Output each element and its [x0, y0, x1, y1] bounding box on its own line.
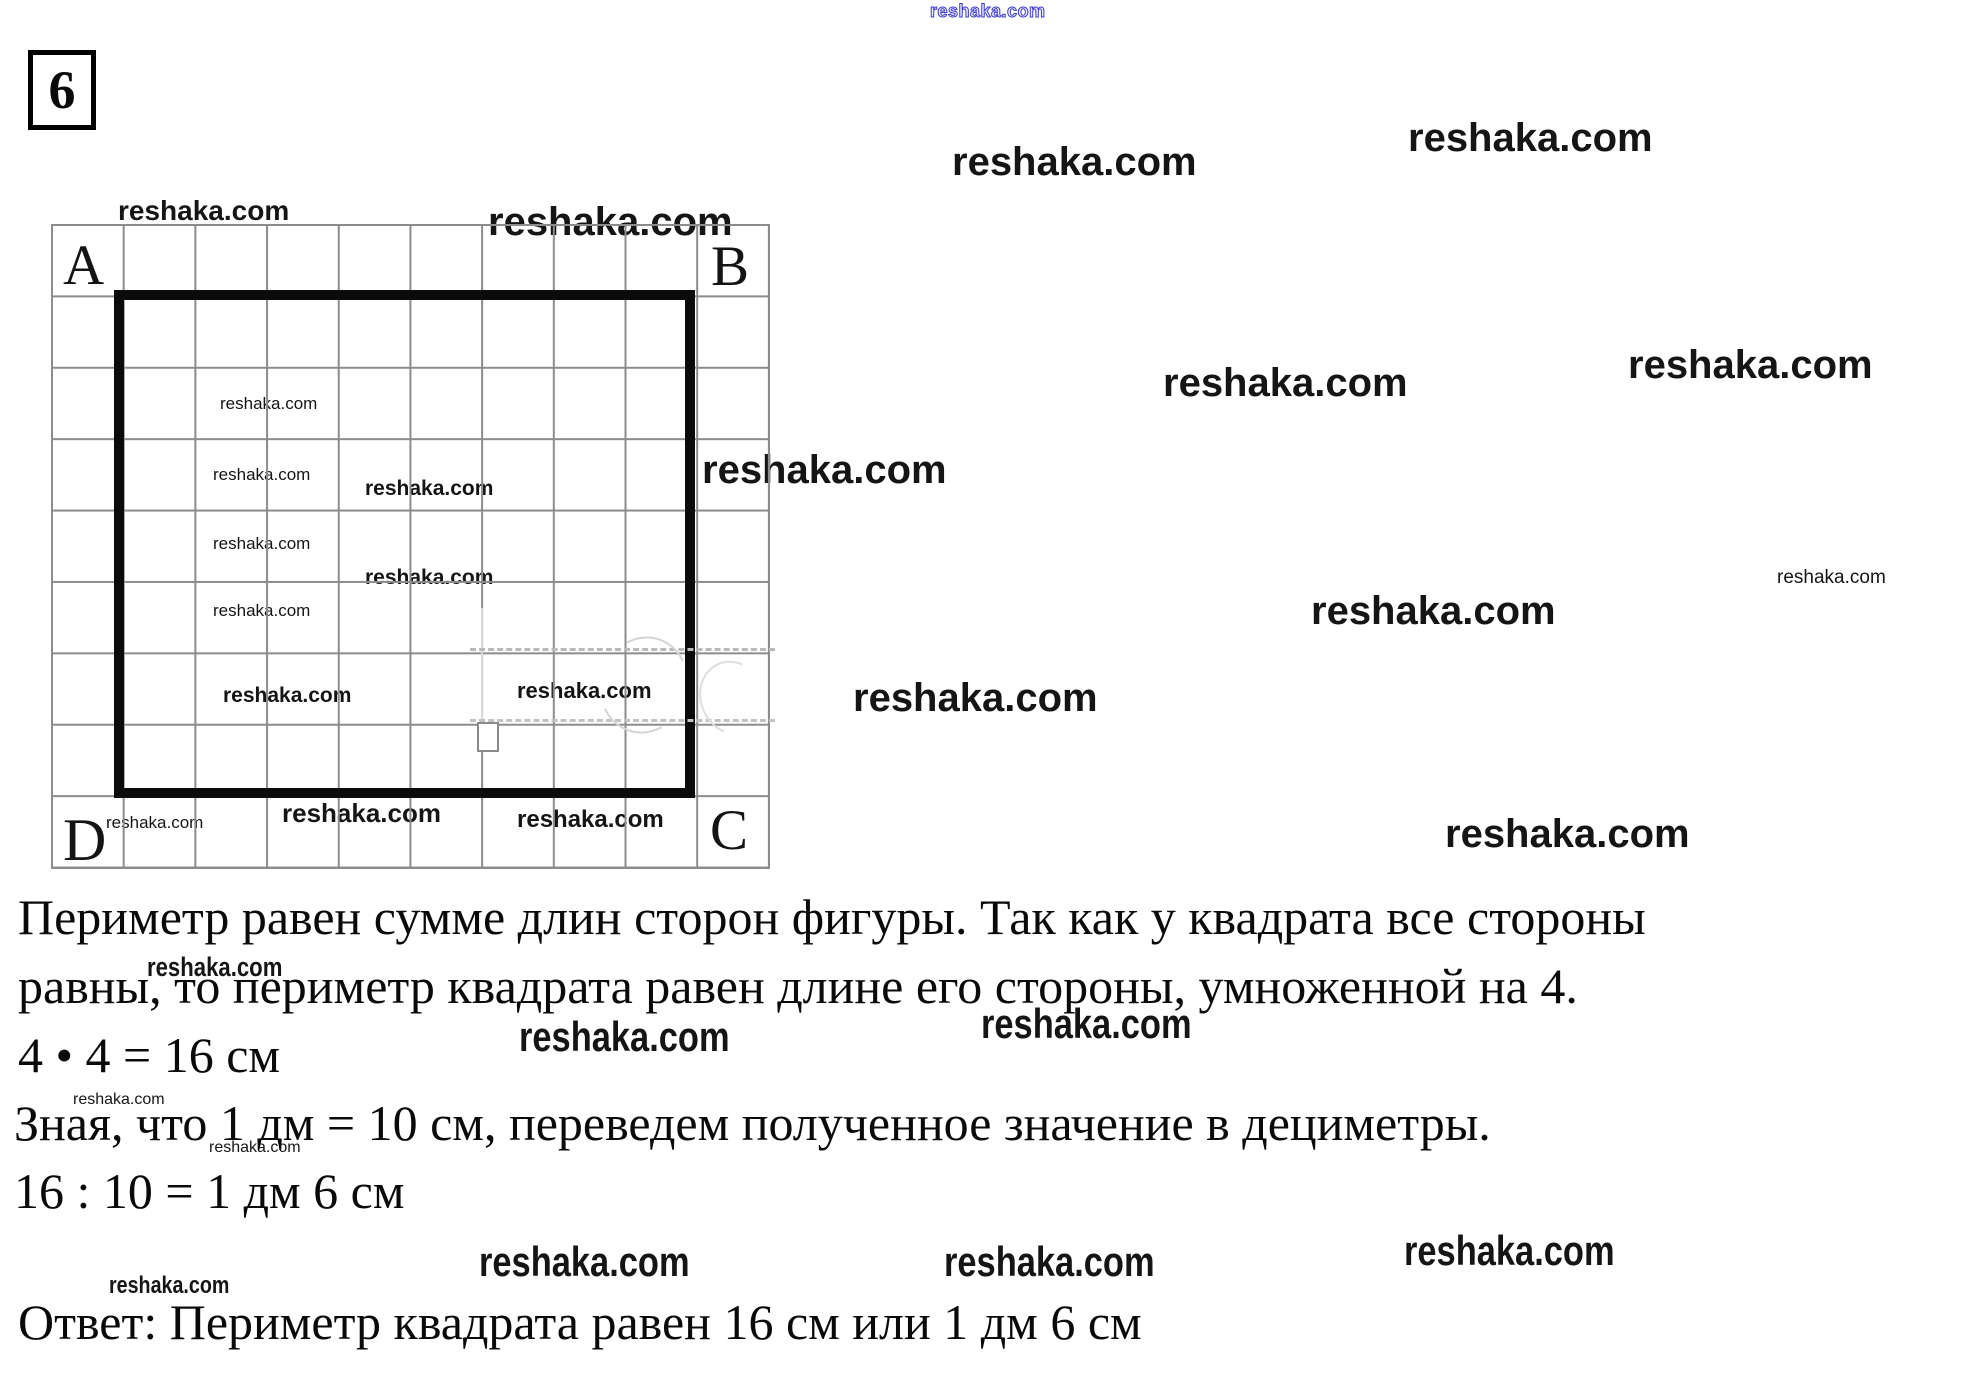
- solution-text-line1: Периметр равен сумме длин сторон фигуры.…: [18, 891, 1646, 944]
- problem-number: 6: [49, 63, 76, 117]
- watermark: reshaka.com: [1628, 345, 1873, 385]
- corner-label-a: A: [63, 237, 104, 294]
- corner-label-b: B: [711, 238, 749, 295]
- solution-text-line3: Зная, что 1 дм = 10 см, переведем получе…: [14, 1097, 1491, 1150]
- solution-text-line2: равны, то периметр квадрата равен длине …: [18, 960, 1578, 1013]
- watermark: reshaka.com: [930, 2, 1046, 20]
- watermark: reshaka.com: [1404, 1230, 1615, 1272]
- watermark: reshaka.com: [1311, 591, 1556, 631]
- answer-line: Ответ: Периметр квадрата равен 16 см или…: [18, 1296, 1142, 1349]
- corner-label-d: D: [63, 810, 106, 870]
- solution-equation1: 4 • 4 = 16 см: [18, 1029, 280, 1082]
- watermark: reshaka.com: [952, 142, 1197, 182]
- watermark: reshaka.com: [1777, 568, 1886, 587]
- watermark: reshaka.com: [944, 1241, 1155, 1283]
- grid-diagram: A B C D: [51, 224, 770, 869]
- solution-equation2: 16 : 10 = 1 дм 6 см: [14, 1165, 405, 1218]
- watermark: reshaka.com: [1445, 814, 1690, 854]
- solution-page: reshaka.comreshaka.comreshaka.comreshaka…: [0, 0, 1965, 1378]
- problem-number-box: 6: [28, 50, 96, 130]
- watermark: reshaka.com: [1163, 363, 1408, 403]
- watermark: reshaka.com: [853, 678, 1098, 718]
- watermark: reshaka.com: [1408, 118, 1653, 158]
- square-outline: [114, 290, 695, 798]
- watermark: reshaka.com: [479, 1241, 690, 1283]
- corner-label-c: C: [710, 802, 748, 859]
- ghost-arc-icon: [687, 650, 778, 746]
- watermark: reshaka.com: [118, 197, 289, 225]
- watermark: reshaka.com: [519, 1016, 730, 1058]
